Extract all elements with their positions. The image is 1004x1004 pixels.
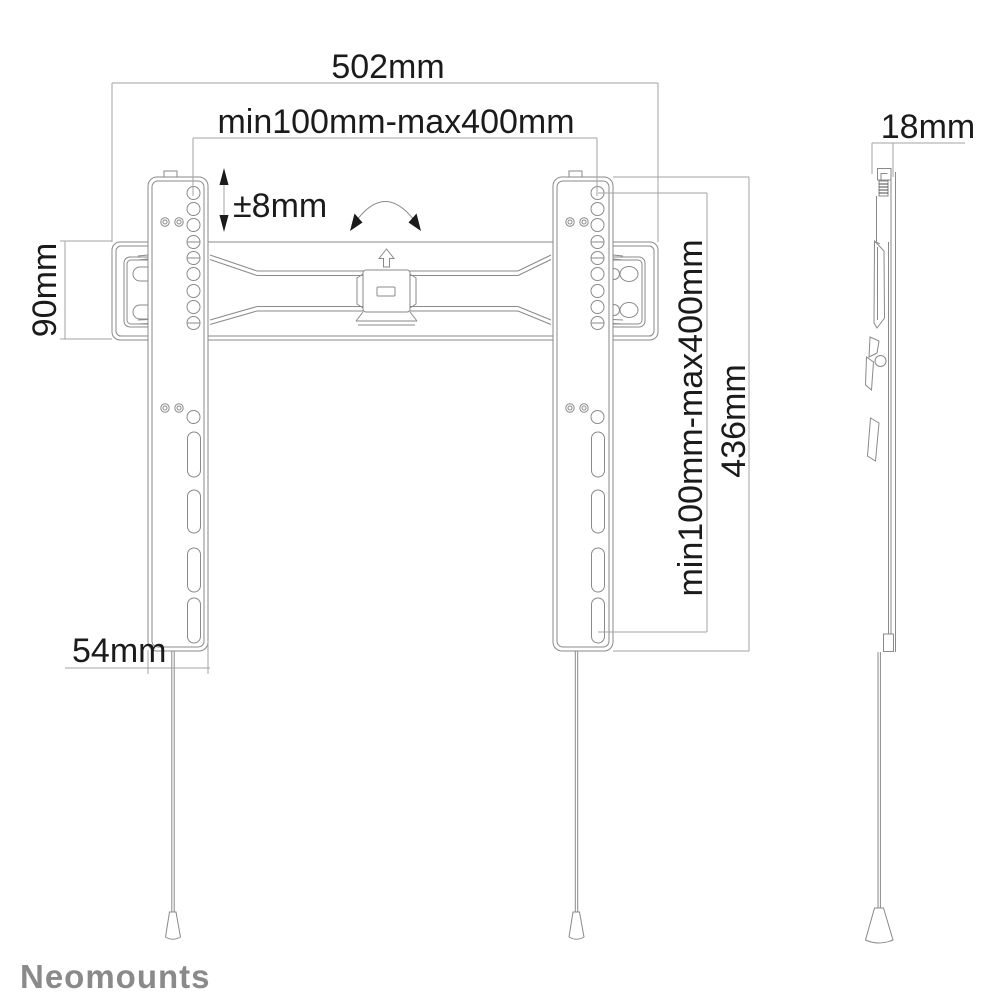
side-top-hook	[878, 169, 892, 181]
dimension-plate-height: 90mm	[26, 241, 112, 339]
right-endcap-slot-top	[620, 267, 638, 282]
brand-logo: Neomounts	[20, 958, 211, 995]
vesa-holes-right	[591, 187, 604, 330]
dimension-label-depth: 18mm	[881, 108, 975, 146]
dimension-label-vesa-horizontal: min100mm-max400mm	[217, 103, 574, 141]
dimension-label-total-width: 502mm	[331, 48, 444, 86]
side-hook-latch	[866, 337, 887, 390]
front-view	[112, 171, 658, 939]
side-middle-blade	[874, 241, 885, 328]
left-pull-cord	[166, 651, 181, 939]
right-rail	[553, 171, 613, 939]
dimension-vesa-horizontal: min100mm-max400mm	[193, 103, 597, 196]
side-cord-weight	[866, 908, 894, 943]
dimension-label-vertical-adjustment: ±8mm	[233, 187, 327, 225]
dimension-depth: 18mm	[872, 108, 975, 177]
side-bottom-foot	[884, 634, 894, 652]
dimension-vertical-adjustment: ±8mm	[220, 168, 328, 232]
side-lower-blade	[868, 418, 880, 461]
side-view	[866, 169, 896, 944]
right-pull-cord	[569, 651, 584, 939]
center-block	[356, 270, 417, 325]
left-rail	[148, 171, 208, 939]
rotation-arc-icon	[350, 202, 421, 232]
dimension-label-vesa-vertical: min100mm-max400mm	[672, 239, 710, 596]
right-endcap-slot-bottom	[620, 303, 638, 318]
side-profile-lines	[889, 170, 896, 652]
center-block-skirt	[356, 312, 417, 325]
dimension-label-rail-height: 436mm	[715, 364, 753, 477]
side-pull-cord	[866, 652, 894, 943]
center-block-body	[363, 270, 410, 312]
dimension-label-plate-height: 90mm	[26, 243, 64, 337]
up-arrow-icon	[379, 249, 394, 267]
technical-drawing-page: 502mm min100mm-max400mm ±8mm 90mm 54mm m…	[0, 0, 1004, 1004]
side-latch-screw	[879, 181, 888, 196]
dimension-label-rail-width: 54mm	[72, 632, 166, 670]
wall-mount-diagram: 502mm min100mm-max400mm ±8mm 90mm 54mm m…	[0, 0, 1004, 1004]
left-cord-weight	[166, 912, 181, 939]
side-upper-edge	[877, 196, 881, 244]
right-cord-weight	[569, 912, 584, 939]
vesa-holes-left	[187, 187, 200, 330]
